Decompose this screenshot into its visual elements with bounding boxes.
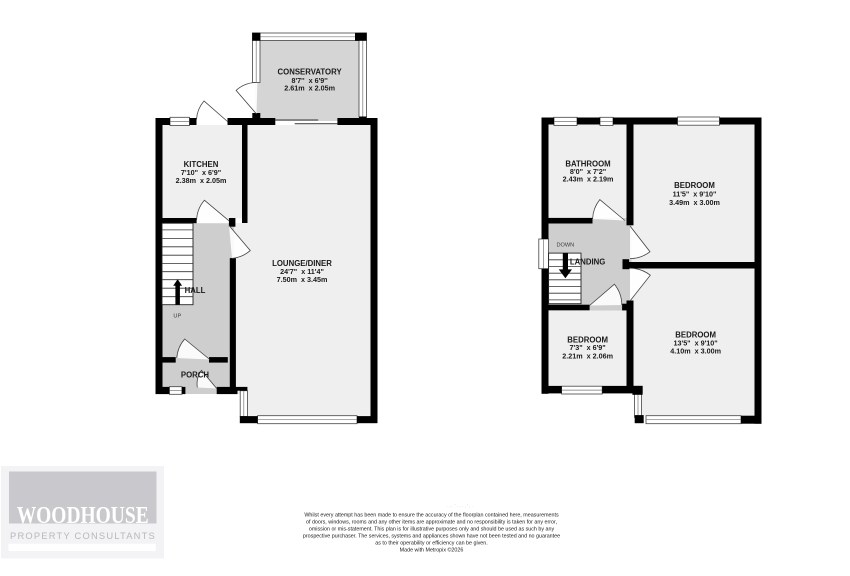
svg-text:2.38m x 2.05m: 2.38m x 2.05m xyxy=(176,176,227,185)
svg-text:3.49m x 3.00m: 3.49m x 3.00m xyxy=(669,198,720,207)
svg-text:UP: UP xyxy=(173,314,181,320)
svg-text:prospective purchaser. The ser: prospective purchaser. The services, sys… xyxy=(303,534,560,540)
svg-text:4.10m x 3.00m: 4.10m x 3.00m xyxy=(670,346,721,355)
svg-text:7.50m x 3.45m: 7.50m x 3.45m xyxy=(277,275,328,284)
svg-text:HALL: HALL xyxy=(185,286,206,295)
svg-text:Whilst every attempt has been: Whilst every attempt has been made to en… xyxy=(304,513,559,519)
svg-text:PROPERTY CONSULTANTS: PROPERTY CONSULTANTS xyxy=(10,531,156,541)
svg-text:Made with Metropix ©2026: Made with Metropix ©2026 xyxy=(400,547,464,554)
svg-text:2.21m x 2.06m: 2.21m x 2.06m xyxy=(562,352,613,361)
svg-text:. , . ' . , . , ' , .: . , . ' . , . , ' , . xyxy=(447,503,473,508)
svg-text:DOWN: DOWN xyxy=(556,242,574,248)
svg-text:LANDING: LANDING xyxy=(570,258,606,267)
svg-text:PORCH: PORCH xyxy=(181,371,210,380)
svg-text:2.61m x 2.05m: 2.61m x 2.05m xyxy=(284,83,335,92)
svg-text:2.43m x 2.19m: 2.43m x 2.19m xyxy=(563,175,614,184)
svg-text:omission or mis-statement. Thi: omission or mis-statement. This plan is … xyxy=(309,527,555,533)
svg-text:WOODHOUSE: WOODHOUSE xyxy=(17,502,149,529)
svg-text:as to their operability or eff: as to their operability or efficiency ca… xyxy=(375,541,487,547)
svg-text:of doors, windows, rooms and a: of doors, windows, rooms and any other i… xyxy=(306,520,557,526)
